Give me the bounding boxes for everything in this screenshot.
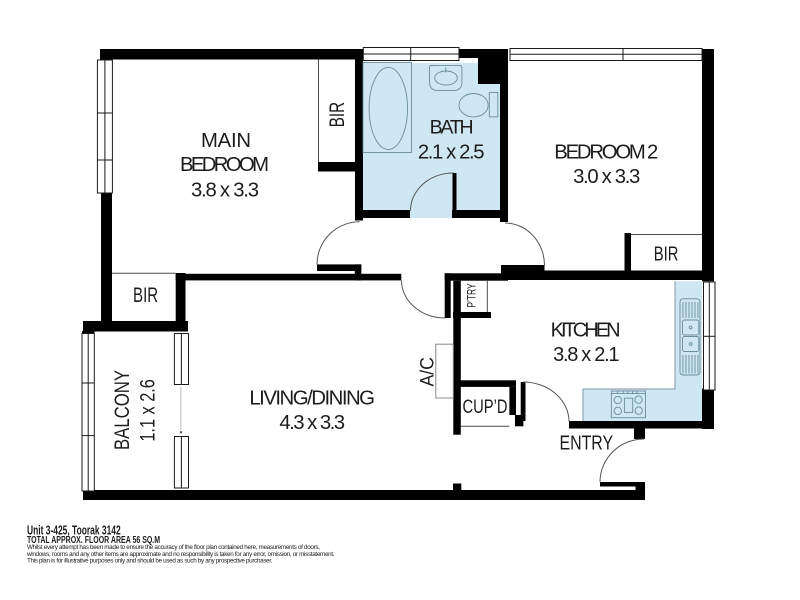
svg-text:BEDROOM: BEDROOM — [180, 154, 269, 176]
svg-text:A/C: A/C — [417, 357, 439, 387]
svg-text:1.1 x 2.6: 1.1 x 2.6 — [137, 379, 160, 442]
svg-text:CUP’D: CUP’D — [463, 397, 508, 418]
svg-text:BALCONY: BALCONY — [111, 370, 134, 450]
svg-text:3.8 x 2.1: 3.8 x 2.1 — [553, 344, 619, 366]
svg-text:KITCHEN: KITCHEN — [551, 319, 621, 341]
svg-text:LIVING/DINING: LIVING/DINING — [249, 387, 375, 409]
svg-text:3.8 x 3.3: 3.8 x 3.3 — [191, 180, 259, 202]
svg-text:BATH: BATH — [430, 116, 474, 138]
svg-text:BIR: BIR — [325, 102, 349, 127]
svg-text:MAIN: MAIN — [201, 130, 251, 152]
svg-text:BIR: BIR — [654, 242, 679, 265]
svg-text:ENTRY: ENTRY — [559, 432, 613, 454]
svg-text:BEDROOM 2: BEDROOM 2 — [554, 141, 658, 163]
svg-text:2.1 x 2.5: 2.1 x 2.5 — [418, 142, 485, 164]
svg-text:P’TRY: P’TRY — [465, 283, 478, 307]
svg-text:This plan is for illustrative: This plan is for illustrative purposes o… — [27, 557, 273, 564]
svg-text:3.0 x 3.3: 3.0 x 3.3 — [573, 166, 640, 188]
svg-text:4.3 x 3.3: 4.3 x 3.3 — [279, 412, 345, 434]
svg-text:BIR: BIR — [133, 284, 158, 307]
